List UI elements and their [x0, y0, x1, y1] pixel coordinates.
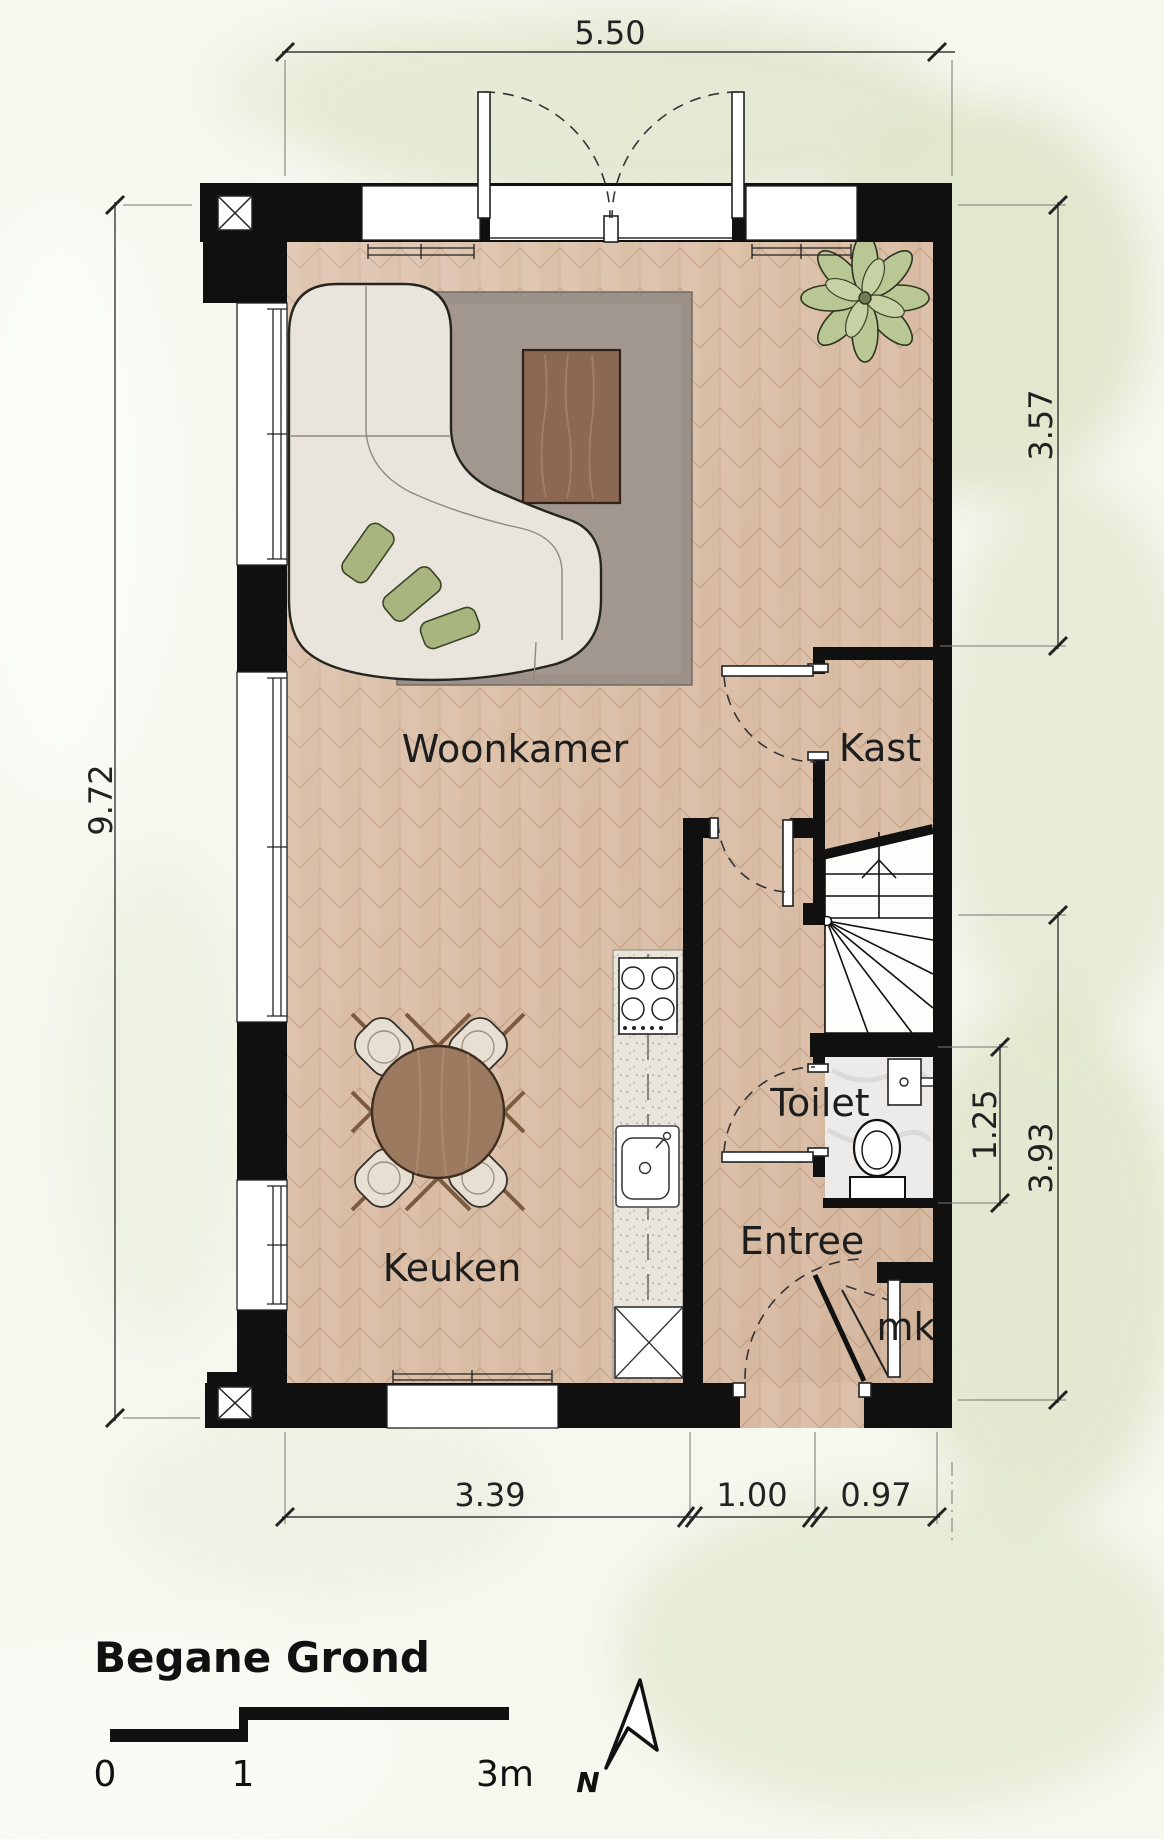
wall-mk-top — [877, 1262, 933, 1283]
wall-right — [933, 242, 952, 1428]
room-label-mk: mk — [876, 1305, 935, 1349]
dimension-bottom-center: 1.00 — [716, 1476, 787, 1514]
dimension-bottom-right: 0.97 — [840, 1476, 911, 1514]
scale-label-zero: 0 — [94, 1754, 117, 1795]
plan-title: Begane Grond — [94, 1633, 430, 1682]
north-label: N — [576, 1766, 599, 1799]
column-top-left — [218, 196, 252, 230]
kitchen-counter — [613, 950, 683, 1378]
wall-toilet-bottom — [823, 1198, 933, 1208]
room-label-keuken: Keuken — [383, 1246, 522, 1290]
window-top-2 — [746, 186, 857, 259]
window-top-1 — [362, 186, 480, 259]
toilet-room — [825, 1057, 938, 1201]
window-left-3 — [237, 1180, 287, 1310]
dishwasher-cabinet — [615, 1307, 683, 1378]
living-room-furniture — [289, 284, 692, 685]
room-label-toilet: Toilet — [769, 1081, 869, 1125]
dimension-top-width: 5.50 — [574, 14, 645, 52]
staircase — [818, 826, 933, 1033]
window-left-1 — [237, 303, 287, 565]
dimension-toilet-depth: 1.25 — [966, 1089, 1004, 1160]
window-left-2 — [237, 672, 287, 1022]
room-label-woonkamer: Woonkamer — [402, 727, 629, 771]
wall-stairs-toilet — [810, 1033, 933, 1057]
wall-top-left-corner — [203, 242, 287, 303]
room-label-kast: Kast — [839, 726, 921, 770]
scale-label-one: 1 — [232, 1754, 255, 1795]
plant — [801, 234, 929, 362]
floor-plan-drawing: 5.50 9.72 3.57 3.93 1.25 3.39 1.00 0.97 … — [0, 0, 1164, 1839]
dimension-left-height: 9.72 — [82, 764, 120, 835]
wall-kast-top — [813, 647, 933, 660]
dimension-right-upper: 3.57 — [1022, 389, 1060, 460]
coffee-table — [523, 350, 620, 503]
wall-kitchen-corridor — [683, 838, 703, 1383]
dimension-right-lower: 3.93 — [1022, 1122, 1060, 1193]
room-label-entree: Entree — [740, 1219, 865, 1263]
dimension-bottom-left: 3.39 — [454, 1476, 525, 1514]
wc — [850, 1120, 905, 1201]
column-bottom-left — [218, 1387, 252, 1419]
scale-label-three: 3m — [476, 1754, 534, 1795]
dining-table — [372, 1046, 504, 1178]
cooktop — [619, 958, 677, 1034]
kitchen-sink — [616, 1126, 679, 1207]
floor-plan-page: 5.50 9.72 3.57 3.93 1.25 3.39 1.00 0.97 … — [0, 0, 1164, 1839]
